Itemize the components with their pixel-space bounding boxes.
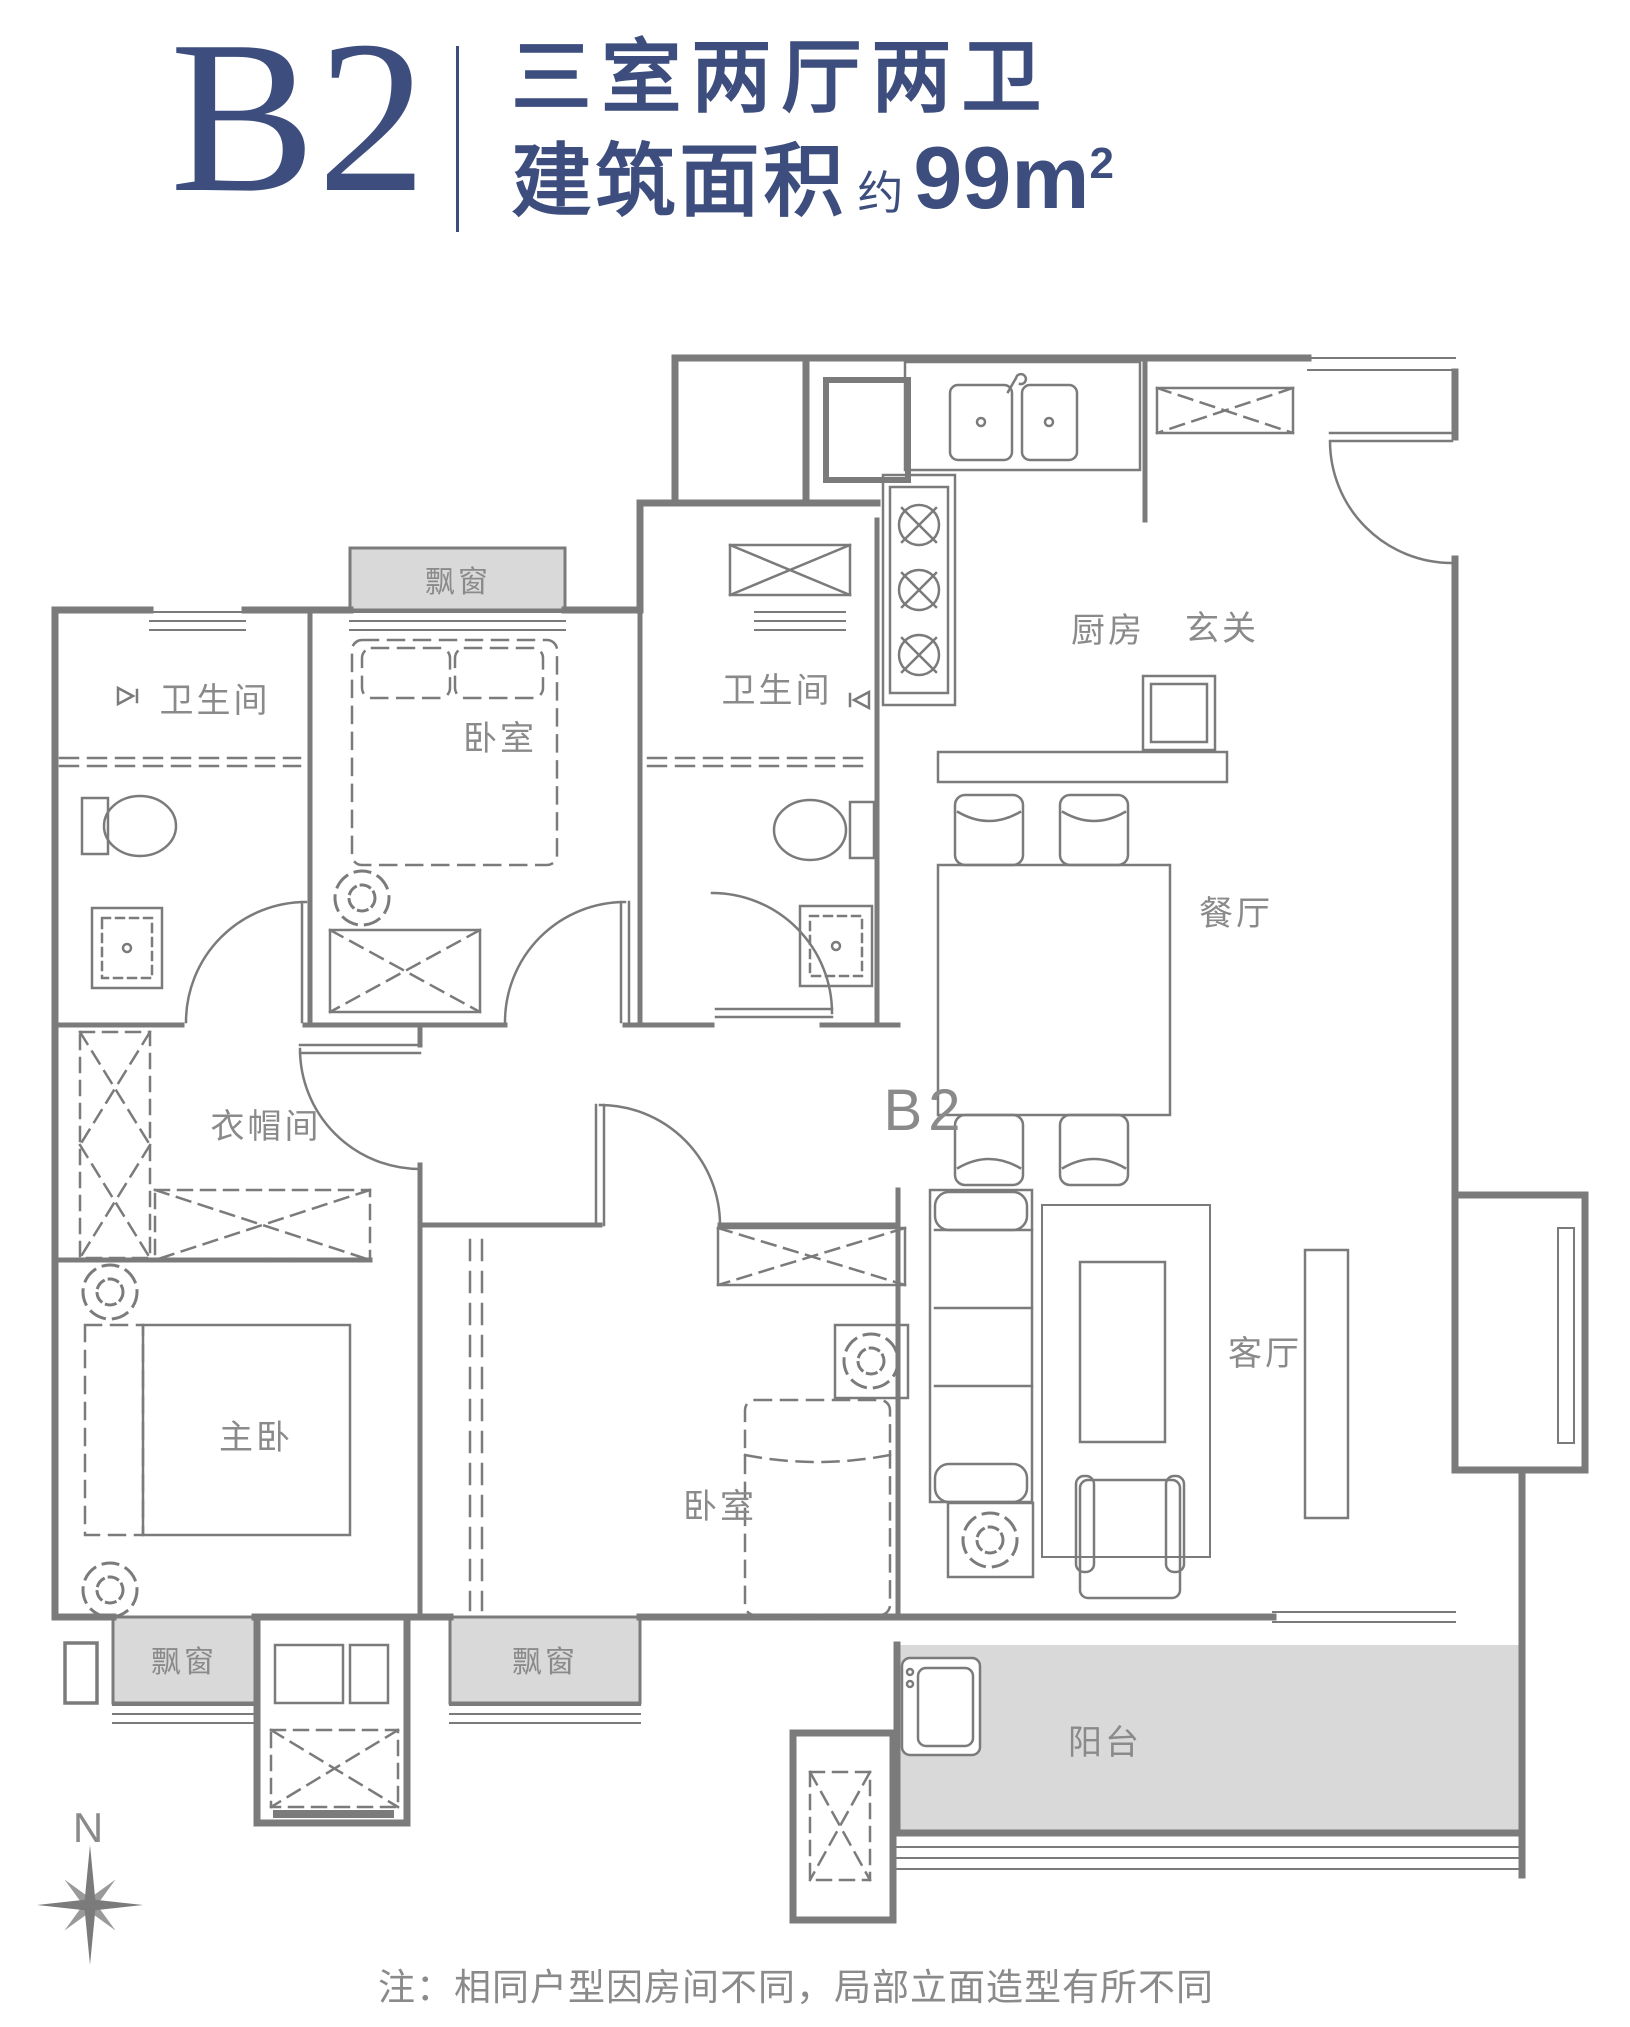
sofa-armrest <box>935 1464 1027 1502</box>
area-value: 99m <box>913 134 1089 222</box>
pillow-icon <box>455 648 543 698</box>
sliding-door-balcony <box>1273 1612 1455 1622</box>
cloakroom-door-icon <box>300 1045 420 1169</box>
plan-unit-mark: B2 <box>884 1078 967 1143</box>
column <box>65 1643 97 1703</box>
toilet-icon <box>850 802 874 858</box>
wardrobe-x-icon <box>1157 388 1293 433</box>
bay-window-label: 飘窗 <box>151 1646 217 1679</box>
kitchen-bar-counter <box>938 752 1227 782</box>
chair-icon <box>1060 1115 1128 1185</box>
cabinet <box>1143 676 1215 750</box>
tv-console <box>1305 1250 1348 1518</box>
kitchen-fixtures <box>826 362 1227 782</box>
shower-head-icon <box>850 692 869 708</box>
bed1-door-icon <box>505 902 629 1022</box>
shower-line-bath2 <box>648 758 872 766</box>
header-text-block: 三室两厅两卫 建筑面积 约 99m 2 <box>459 18 1118 222</box>
room-label-bathroom-1: 卫生间 <box>160 682 271 720</box>
note-text: 注：相同户型因房间不同，局部立面造型有所不同 <box>378 1967 1214 2008</box>
layout-line: 三室两厅两卫 <box>511 38 1118 118</box>
window-top-right <box>1308 358 1455 370</box>
wardrobe-x-icon <box>155 1190 370 1260</box>
window-bay-bed2 <box>450 1705 640 1723</box>
foyer-cabinet <box>1157 388 1293 433</box>
dining-table <box>938 865 1170 1115</box>
room-label-balcony: 阳台 <box>1068 1724 1142 1762</box>
fan-icon <box>83 1265 137 1319</box>
compass-icon <box>37 1845 143 1965</box>
sliding-partition-icon <box>470 1240 482 1610</box>
compass-north-label: N <box>73 1804 103 1851</box>
window-bath1 <box>150 612 245 630</box>
unit-title: B2 <box>170 18 456 219</box>
bed1-wardrobe <box>330 930 480 1012</box>
floorplan-page: B2 三室两厅两卫 建筑面积 约 99m 2 <box>0 0 1630 2027</box>
room-label-bathroom-2: 卫生间 <box>722 672 833 710</box>
fan-icon <box>83 1563 137 1617</box>
room-label-cloakroom: 衣帽间 <box>211 1108 322 1146</box>
shower-line-bath1 <box>60 758 300 766</box>
chair-icon <box>1060 795 1128 865</box>
balcony-fixtures <box>902 1658 980 1755</box>
chair-icon <box>955 795 1023 865</box>
sink-basin-icon <box>1022 385 1077 460</box>
sink-basin-icon <box>950 385 1012 460</box>
bath2-fixtures <box>648 692 874 986</box>
fridge-icon <box>826 380 908 480</box>
wardrobe-x-icon <box>80 1032 150 1258</box>
fan-icon <box>335 871 389 925</box>
area-approx: 约 <box>857 170 907 216</box>
room-label-master-bedroom: 主卧 <box>219 1419 293 1457</box>
shower-head-icon <box>118 688 137 704</box>
window-bath2 <box>755 612 845 630</box>
dining-furniture <box>938 795 1170 1185</box>
entrance-door-icon <box>1330 433 1452 563</box>
room-label-dining: 餐厅 <box>1199 895 1273 933</box>
balcony-area <box>897 1645 1522 1833</box>
bed-icon <box>745 1400 890 1615</box>
room-label-bedroom-1: 卧室 <box>463 720 537 758</box>
window-bay-master <box>113 1705 255 1723</box>
coffee-table <box>1080 1262 1165 1442</box>
pillow-icon <box>362 648 450 698</box>
bay-window-label: 飘窗 <box>512 1646 578 1679</box>
room-label-bedroom-2: 卧室 <box>683 1488 757 1526</box>
floorplan-drawing: 卫生间 卧室 卫生间 厨房 玄关 餐厅 衣帽间 主卧 卧室 客厅 阳台 飘窗 飘… <box>0 0 1630 2027</box>
toilet-bowl-icon <box>774 800 846 860</box>
sofa-armrest <box>935 1192 1027 1230</box>
room-label-kitchen: 厨房 <box>1071 612 1145 650</box>
cloakroom-wardrobes <box>80 1032 370 1260</box>
toilet-bowl-icon <box>104 796 176 856</box>
window-bay-top <box>350 612 565 630</box>
area-label: 建筑面积 <box>511 142 847 222</box>
bath2-door-icon <box>712 893 832 1017</box>
bed2-door-icon <box>596 1105 720 1225</box>
header: B2 三室两厅两卫 建筑面积 约 99m 2 <box>170 18 1118 232</box>
fixed-window-icon <box>730 545 850 595</box>
area-superscript: 2 <box>1090 142 1118 186</box>
bed-headboard <box>85 1325 143 1535</box>
bath1-fixtures <box>60 688 300 988</box>
master-furniture <box>85 1325 350 1535</box>
living-furniture <box>930 1190 1348 1598</box>
bay-window-label: 飘窗 <box>425 566 491 599</box>
area-line: 建筑面积 约 99m 2 <box>511 134 1118 222</box>
wardrobe-x-icon <box>330 930 480 1012</box>
room-label-foyer: 玄关 <box>1185 610 1259 648</box>
fan-icon <box>844 1334 898 1388</box>
bed2-furniture <box>718 1228 908 1615</box>
sofa-icon <box>930 1190 1032 1502</box>
room-label-living: 客厅 <box>1228 1335 1302 1373</box>
window-balcony <box>897 1847 1522 1869</box>
bath1-door-icon <box>186 902 310 1022</box>
pillow-line <box>745 1455 890 1462</box>
fan-icon <box>963 1513 1017 1567</box>
wardrobe-x-icon <box>718 1228 905 1285</box>
